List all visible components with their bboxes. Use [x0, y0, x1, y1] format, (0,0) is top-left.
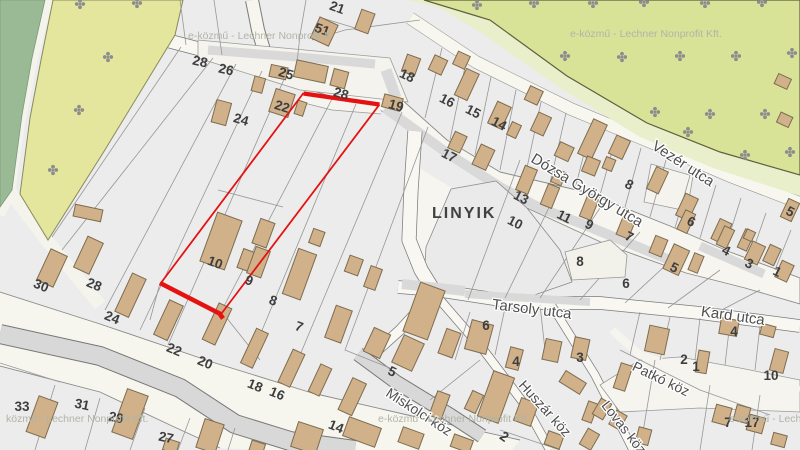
svg-text:4: 4 — [512, 354, 520, 369]
svg-text:8: 8 — [576, 254, 584, 269]
svg-text:e-közmű - Lechner Nonprofit K: e-közmű - Lechner Nonprofit K — [188, 30, 331, 42]
svg-text:e-közmű - Lechner: e-közmű - Lechner — [729, 413, 800, 425]
svg-text:27: 27 — [157, 429, 175, 447]
svg-text:10: 10 — [763, 368, 778, 383]
svg-text:e-közmű - Lechner Nonprofit Kf: e-közmű - Lechner Nonprofit Kft. — [378, 413, 530, 425]
svg-text:LINYIK: LINYIK — [432, 205, 496, 222]
svg-text:6: 6 — [482, 318, 490, 333]
svg-text:1: 1 — [692, 359, 700, 374]
svg-text:33: 33 — [14, 399, 30, 414]
svg-text:4: 4 — [730, 324, 738, 339]
svg-text:3: 3 — [576, 350, 584, 365]
svg-text:2: 2 — [680, 352, 688, 367]
svg-text:e-közmű - Lechner Nonprofit Kf: e-közmű - Lechner Nonprofit Kft. — [570, 28, 722, 40]
svg-text:6: 6 — [622, 276, 630, 291]
svg-text:közmű - Lechner Nonprofit Kft.: közmű - Lechner Nonprofit Kft. — [6, 413, 148, 425]
